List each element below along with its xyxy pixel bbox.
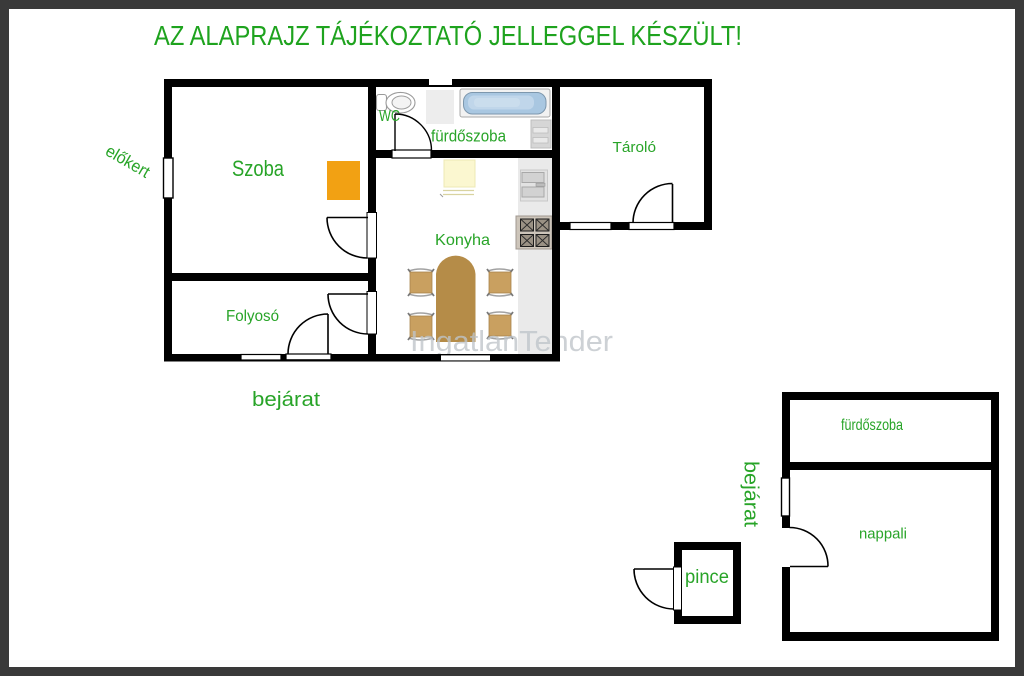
svg-text:nappali: nappali: [859, 526, 907, 543]
svg-text:fürdőszoba: fürdőszoba: [841, 417, 903, 434]
svg-text:WC: WC: [379, 108, 400, 125]
svg-text:IngatlanTender: IngatlanTender: [410, 326, 613, 358]
svg-text:Folyosó: Folyosó: [226, 308, 279, 325]
svg-text:bejárat: bejárat: [252, 389, 320, 411]
svg-text:bejárat: bejárat: [740, 461, 762, 527]
svg-text:fürdőszoba: fürdőszoba: [431, 128, 507, 146]
svg-text:AZ ALAPRAJZ TÁJÉKOZTATÓ JELLEG: AZ ALAPRAJZ TÁJÉKOZTATÓ JELLEGGEL KÉSZÜL…: [154, 20, 742, 51]
svg-text:pince: pince: [685, 567, 729, 588]
svg-text:Tároló: Tároló: [613, 139, 657, 156]
svg-text:Szoba: Szoba: [232, 156, 285, 181]
svg-text:Konyha: Konyha: [435, 232, 490, 249]
